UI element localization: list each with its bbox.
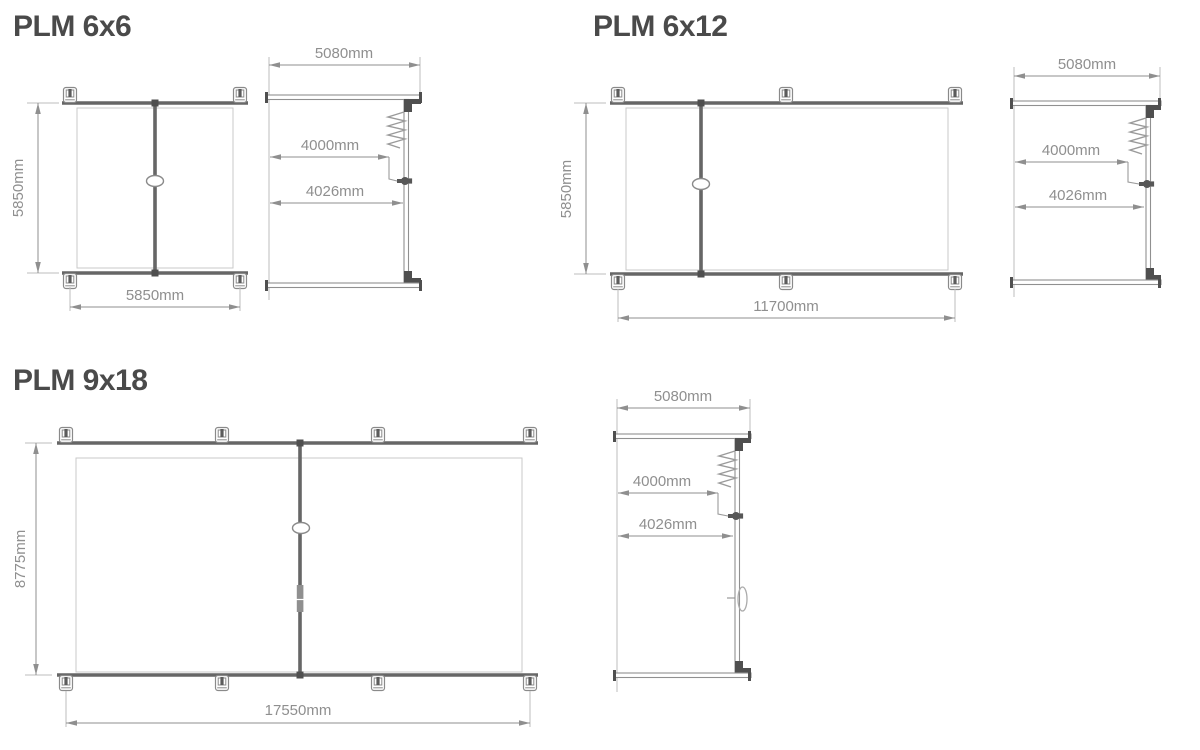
plan-width-label: 11700mm (753, 298, 819, 315)
top-beam (1012, 101, 1161, 106)
plan-view-6x12: 5850mm 11700mm (558, 88, 963, 323)
diagram-canvas: PLM 6x6 5850mm 58 (0, 0, 1200, 750)
pole-junction (152, 270, 159, 277)
pole-junction (297, 440, 304, 447)
bottom-beam (615, 673, 751, 678)
panel-plm-6x12: PLM 6x12 5850mm 1 (558, 10, 1161, 322)
pole-junction (152, 100, 159, 107)
bottom-beam (1012, 280, 1161, 285)
side-width-dimension: 5080mm (269, 45, 420, 65)
panel-title: PLM 6x12 (593, 10, 727, 43)
foot-plates (612, 88, 962, 290)
leg-member (735, 439, 740, 674)
inner-height-dimension: 4000mm (270, 137, 397, 181)
inner-height-label: 4000mm (633, 473, 691, 490)
plan-depth-label: 8775mm (12, 530, 29, 588)
lock-knob (397, 177, 412, 185)
side-width-label: 5080mm (1058, 56, 1116, 73)
side-width-label: 5080mm (654, 388, 712, 405)
canopy-outline (626, 108, 948, 270)
inner-height-dimension: 4000mm (1015, 142, 1139, 184)
tension-spring (388, 112, 405, 148)
tension-spring (719, 451, 736, 487)
plan-depth-label: 5850mm (10, 159, 27, 217)
width-dimension: 17550mm (66, 691, 530, 727)
width-dimension: 5850mm (70, 287, 240, 311)
side-width-dimension: 5080mm (617, 388, 750, 408)
pole-junction (297, 672, 304, 679)
diagram-svg: PLM 6x6 5850mm 58 (0, 0, 1200, 750)
lock-knob (728, 512, 743, 520)
tension-spring (1130, 118, 1147, 154)
inner-height-label: 4000mm (301, 137, 359, 154)
plan-depth-label: 5850mm (558, 160, 575, 218)
outer-height-label: 4026mm (306, 183, 364, 200)
side-view-6x6: 5080mm 4000mm 4026mm (265, 45, 422, 300)
foot-plates (60, 428, 537, 691)
panel-plm-9x18: PLM 9x18 8775mm (12, 364, 751, 727)
depth-dimension: 5850mm (558, 103, 606, 274)
plan-width-label: 5850mm (126, 287, 184, 304)
leg-member (1146, 106, 1151, 281)
pole-junction (698, 271, 705, 278)
plan-view-6x6: 5850mm 5850mm (10, 88, 248, 312)
outer-height-label: 4026mm (1049, 187, 1107, 204)
inner-height-label: 4000mm (1042, 142, 1100, 159)
pole-junction (698, 100, 705, 107)
outer-height-dimension: 4026mm (270, 183, 403, 203)
plan-width-label: 17550mm (265, 702, 332, 719)
lock-knob (1139, 180, 1154, 188)
bottom-beam (267, 283, 421, 288)
pole-connector-ellipse (293, 523, 310, 534)
pole-sleeve (297, 585, 304, 612)
side-width-dimension: 5080mm (1014, 56, 1160, 76)
side-view-9x18: 5080mm 4000mm 4026mm (613, 388, 751, 692)
panel-title: PLM 9x18 (13, 364, 147, 397)
side-width-label: 5080mm (315, 45, 373, 62)
outer-height-label: 4026mm (639, 516, 697, 533)
panel-title: PLM 6x6 (13, 10, 131, 43)
top-beam (267, 95, 421, 100)
outer-height-dimension: 4026mm (618, 516, 733, 536)
leg-member (404, 100, 409, 284)
side-view-6x12: 5080mm 4000mm 4026mm (1010, 56, 1161, 297)
pole-connector-ellipse (693, 179, 710, 190)
top-beam (615, 434, 751, 439)
panel-plm-6x6: PLM 6x6 5850mm 58 (10, 10, 422, 311)
width-dimension: 11700mm (618, 289, 955, 322)
inner-height-dimension: 4000mm (618, 473, 728, 516)
plan-view-9x18: 8775mm 17550mm (12, 428, 538, 728)
depth-dimension: 8775mm (12, 443, 52, 675)
outer-height-dimension: 4026mm (1015, 187, 1144, 207)
depth-dimension: 5850mm (10, 103, 59, 273)
pole-connector-ellipse (147, 176, 164, 187)
